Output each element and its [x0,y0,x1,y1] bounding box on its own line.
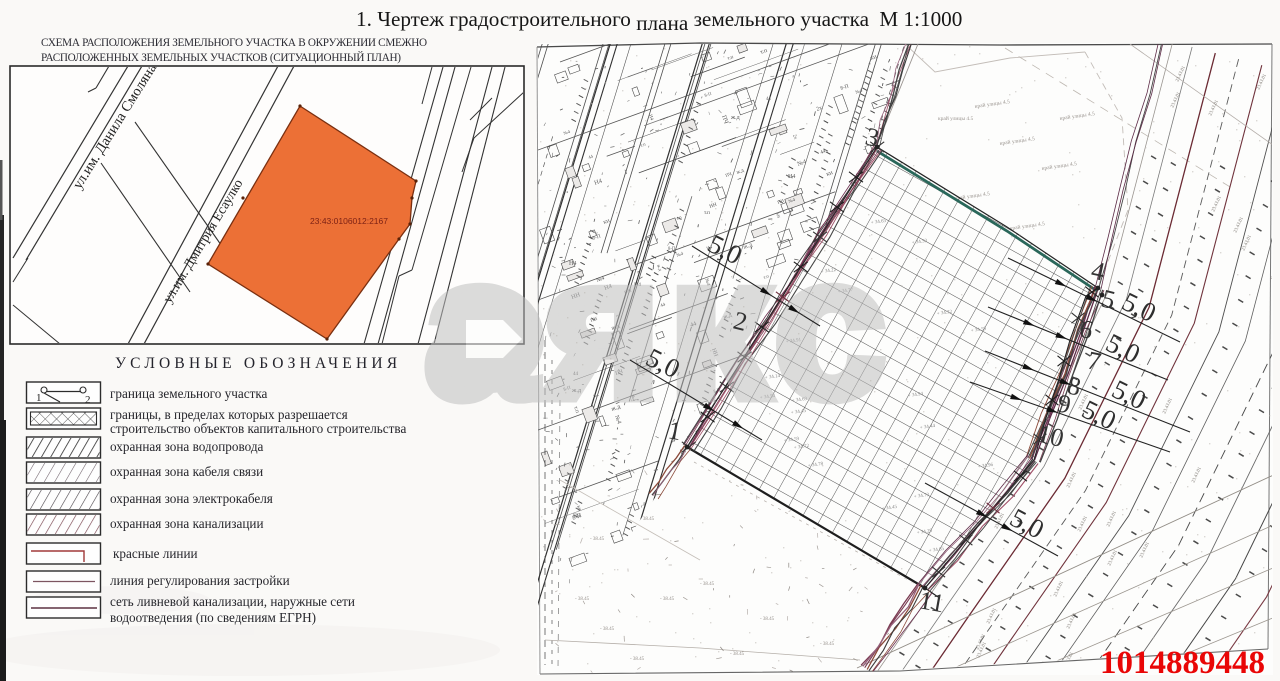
svg-text:23:43:0106012:2167: 23:43:0106012:2167 [310,216,388,226]
svg-text:2: 2 [85,394,91,406]
svg-text:строительство объектов капитал: строительство объектов капитального стро… [110,421,406,436]
svg-text:- 38.45: - 38.45 [630,657,645,662]
svg-text:ж.д: ж.д [730,115,740,121]
svg-text:сеть ливневой канализации, нар: сеть ливневой канализации, наружные сети [110,594,355,609]
svg-text:граница земельного участка: граница земельного участка [110,386,268,401]
svg-text:1: 1 [36,392,42,404]
svg-text:УСЛОВНЫЕ ОБОЗНАЧЕНИЯ: УСЛОВНЫЕ ОБОЗНАЧЕНИЯ [115,355,401,372]
svg-text:- 38.45: - 38.45 [730,652,745,657]
svg-text:- 38.45: - 38.45 [590,537,605,542]
svg-text:красные линии: красные линии [113,546,198,561]
svg-text:11: 11 [917,585,947,618]
svg-text:- 38.45: - 38.45 [600,627,615,632]
svg-text:водоотведения (по сведениям ЕГ: водоотведения (по сведениям ЕГРН) [110,610,316,625]
svg-text:край улицы 4.5: край улицы 4.5 [938,115,974,122]
svg-text:- 38.45: - 38.45 [660,597,675,602]
svg-text:охранная зона канализации: охранная зона канализации [110,516,264,531]
svg-text:1014889448: 1014889448 [1100,645,1265,681]
svg-text:- 38.45: - 38.45 [575,597,590,602]
svg-text:границы, в пределах которых ра: границы, в пределах которых разрешается [110,407,348,422]
svg-text:Н4: Н4 [788,174,795,180]
svg-text:- 38.45: - 38.45 [760,617,775,622]
svg-text:44: 44 [766,97,771,102]
svg-text:- 38.45: - 38.45 [820,642,835,647]
svg-text:охранная зона кабеля связи: охранная зона кабеля связи [110,464,263,479]
svg-text:СХЕМА РАСПОЛОЖЕНИЯ ЗЕМЕЛЬНОГО: СХЕМА РАСПОЛОЖЕНИЯ ЗЕМЕЛЬНОГО УЧАСТКА В … [41,37,427,49]
svg-text:- 38.45: - 38.45 [700,582,715,587]
svg-text:РАСПОЛОЖЕННЫХ ЗЕМЕЛЬНЫХ УЧАСТК: РАСПОЛОЖЕННЫХ ЗЕМЕЛЬНЫХ УЧАСТКОВ (СИТУАЦ… [41,52,401,64]
svg-text:1. Чертеж градостроительного п: 1. Чертеж градостроительного плана земел… [356,7,962,35]
svg-text:- 38.45: - 38.45 [640,517,655,522]
svg-text:охранная зона водопровода: охранная зона водопровода [110,439,264,454]
svg-text:охранная зона электрокабеля: охранная зона электрокабеля [110,491,273,506]
svg-text:ПЧ: ПЧ [573,513,581,519]
svg-text:линия регулирования застройки: линия регулирования застройки [110,573,290,588]
